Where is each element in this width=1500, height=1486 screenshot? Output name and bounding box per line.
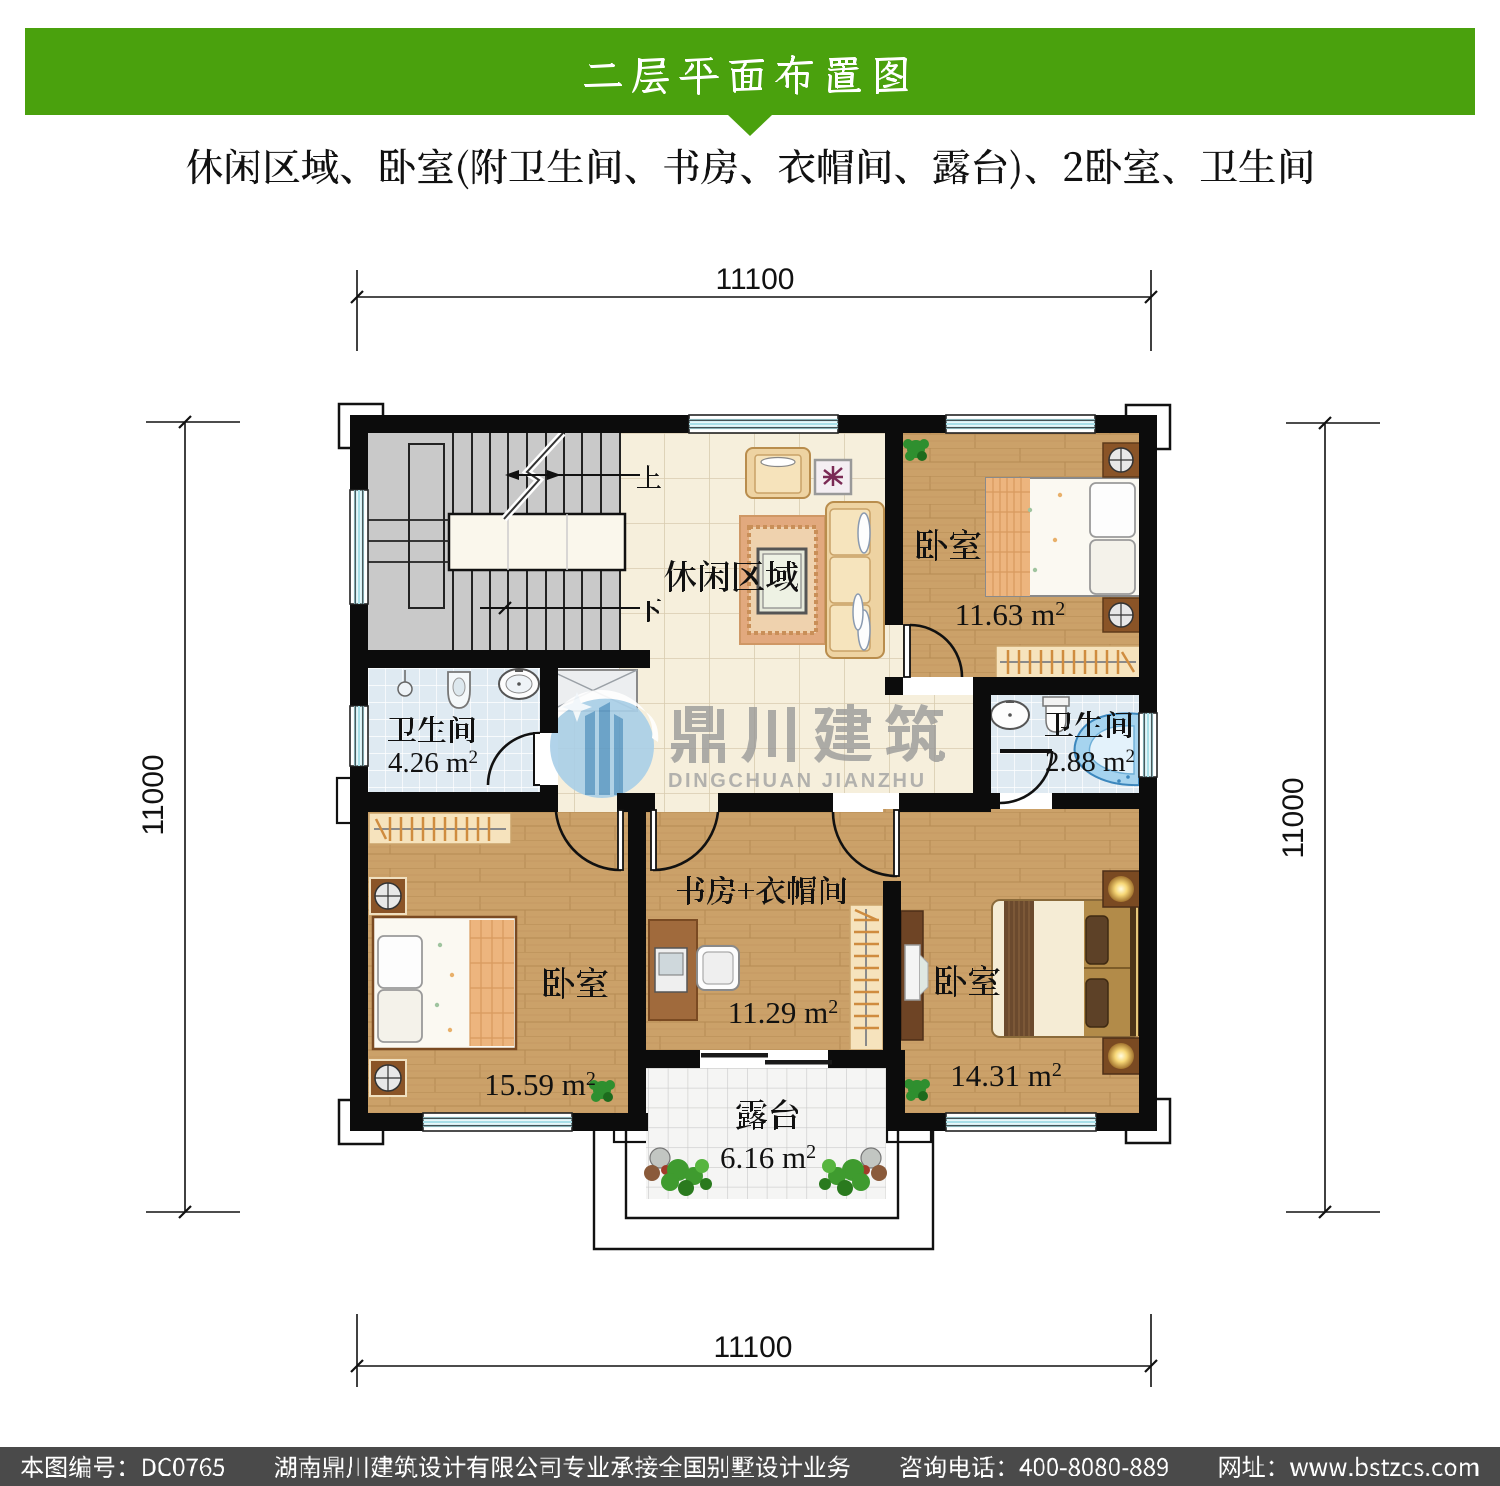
svg-text:15.59 m2: 15.59 m2 <box>484 1067 596 1102</box>
svg-text:11100: 11100 <box>714 1331 793 1364</box>
svg-text:11100: 11100 <box>716 263 795 296</box>
svg-text:4.26 m2: 4.26 m2 <box>388 747 478 779</box>
svg-text:DINGCHUAN JIANZHU: DINGCHUAN JIANZHU <box>668 770 927 792</box>
svg-text:14.31 m2: 14.31 m2 <box>950 1058 1062 1093</box>
svg-text:11.63 m2: 11.63 m2 <box>955 597 1065 632</box>
svg-text:11000: 11000 <box>1277 777 1310 858</box>
svg-text:2.88 m2: 2.88 m2 <box>1045 746 1135 778</box>
svg-text:11.29 m2: 11.29 m2 <box>728 995 838 1030</box>
svg-text:11000: 11000 <box>137 754 170 835</box>
svg-text:6.16 m2: 6.16 m2 <box>720 1140 816 1175</box>
